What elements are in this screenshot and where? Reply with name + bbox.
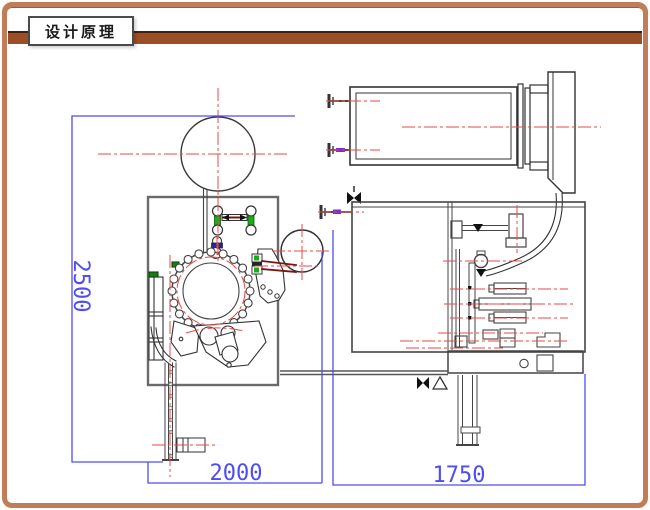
tension-bracket [252, 249, 296, 303]
dim-text-2000: 2000 [210, 461, 263, 486]
cabinet-base [448, 351, 583, 373]
title-box: 设计原理 [28, 16, 134, 46]
cabinet-leg [456, 375, 480, 445]
dim-text-1750: 1750 [433, 463, 486, 488]
film-rollers [213, 206, 257, 235]
cabinet-lower-parts [455, 329, 560, 347]
dim-text-2500: 2500 [68, 260, 93, 313]
page: 设计原理 [0, 0, 650, 510]
floor-valve-icons [417, 377, 447, 389]
filler-cabinet [280, 202, 585, 445]
labeling-machine [148, 117, 323, 460]
cad-drawing: 2500 2000 1750 [0, 0, 650, 510]
page-title: 设计原理 [45, 21, 117, 42]
filler-machine [280, 72, 585, 445]
tank-bracket [548, 72, 575, 193]
star-wheel [168, 248, 254, 334]
